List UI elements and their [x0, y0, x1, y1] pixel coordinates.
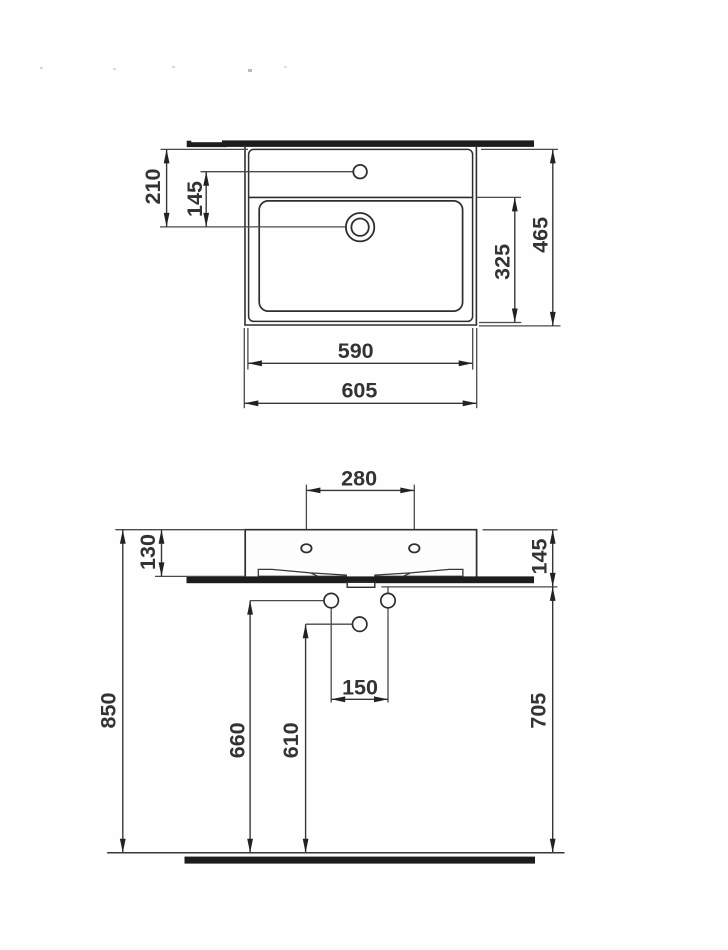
- svg-text:150: 150: [342, 675, 378, 699]
- svg-text:850: 850: [97, 693, 121, 729]
- svg-text:210: 210: [141, 169, 165, 205]
- svg-text:605: 605: [341, 378, 377, 402]
- svg-text:660: 660: [225, 722, 249, 758]
- svg-text:145: 145: [528, 539, 552, 575]
- svg-text:145: 145: [183, 181, 207, 217]
- svg-text:325: 325: [491, 244, 515, 280]
- svg-text:610: 610: [279, 722, 303, 758]
- svg-text:465: 465: [529, 217, 553, 253]
- svg-text:280: 280: [341, 466, 377, 490]
- svg-text:130: 130: [136, 534, 160, 570]
- svg-text:590: 590: [338, 339, 374, 363]
- svg-text:705: 705: [527, 693, 551, 729]
